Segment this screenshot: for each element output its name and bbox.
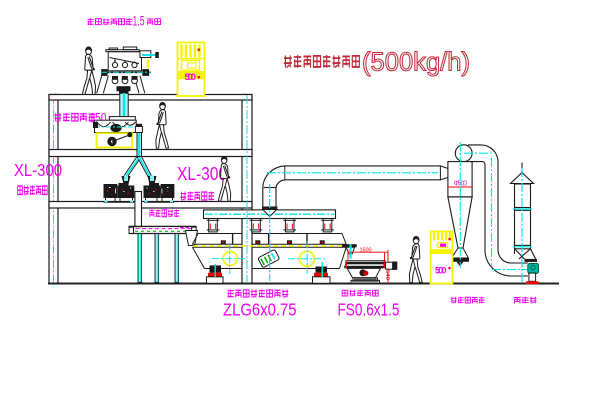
- svg-text:XL-300: XL-300: [177, 164, 227, 184]
- svg-text:FS0.6x1.5: FS0.6x1.5: [338, 300, 400, 320]
- svg-text:(500kg/h): (500kg/h): [362, 47, 470, 77]
- svg-text:500: 500: [435, 266, 447, 276]
- svg-text:XL-300: XL-300: [14, 160, 62, 180]
- svg-text:540: 540: [384, 270, 390, 280]
- svg-text:500: 500: [185, 72, 197, 83]
- svg-text:1.5: 1.5: [133, 14, 145, 29]
- svg-text:1500: 1500: [360, 248, 372, 254]
- svg-text:ZLG6x0.75: ZLG6x0.75: [223, 300, 297, 320]
